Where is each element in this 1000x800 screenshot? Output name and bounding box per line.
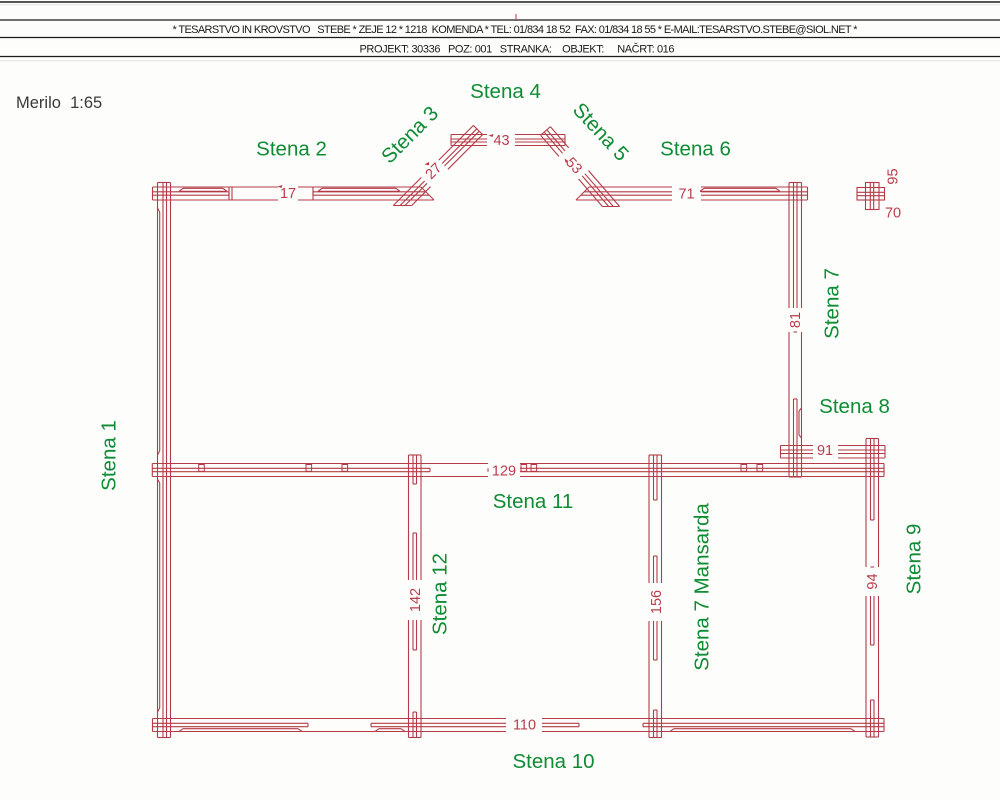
svg-text:Stena 10: Stena 10: [512, 750, 594, 773]
svg-text:Stena 11: Stena 11: [493, 490, 574, 513]
svg-text:Stena 2: Stena 2: [256, 138, 327, 161]
svg-text:17: 17: [280, 186, 296, 202]
svg-text:PROJEKT: 30336 POZ: 001 ST: PROJEKT: 30336 POZ: 001 STRANKA: OBJEKT:…: [360, 43, 675, 56]
svg-text:156: 156: [649, 590, 665, 614]
svg-text:Stena 1: Stena 1: [98, 420, 121, 491]
svg-text:Stena 9: Stena 9: [903, 524, 926, 595]
svg-text:70: 70: [885, 206, 901, 222]
svg-text:Stena 6: Stena 6: [660, 138, 731, 161]
svg-text:Stena 7 Mansarda: Stena 7 Mansarda: [691, 503, 714, 671]
svg-text:Stena 4: Stena 4: [470, 80, 541, 103]
svg-text:142: 142: [408, 588, 424, 612]
svg-text:Stena 7: Stena 7: [821, 268, 844, 339]
svg-text:71: 71: [678, 187, 694, 203]
svg-text:110: 110: [513, 718, 536, 734]
svg-text:Stena 8: Stena 8: [819, 395, 890, 418]
svg-text:129: 129: [492, 464, 516, 480]
svg-text:Merilo 1:65: Merilo 1:65: [16, 94, 102, 112]
svg-text:81: 81: [788, 312, 804, 328]
svg-text:* TESARSTVO IN KROVSTVO STEB: * TESARSTVO IN KROVSTVO STEBE * ZEJE 12 …: [173, 24, 859, 36]
svg-text:95: 95: [886, 168, 902, 184]
svg-text:Stena 12: Stena 12: [429, 553, 452, 635]
svg-text:94: 94: [865, 573, 881, 589]
svg-text:91: 91: [817, 443, 833, 459]
svg-text:43: 43: [493, 133, 509, 149]
